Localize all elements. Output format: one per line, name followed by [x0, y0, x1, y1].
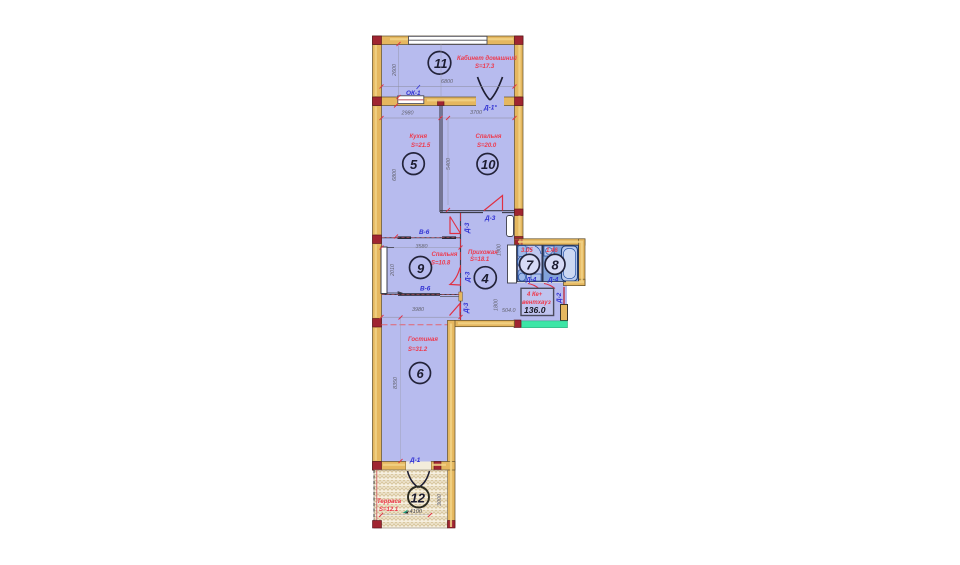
svg-text:Д-3: Д-3: [464, 222, 471, 234]
svg-text:12: 12: [411, 491, 426, 506]
svg-text:6800: 6800: [441, 79, 453, 85]
svg-text:ОК-1: ОК-1: [406, 90, 421, 97]
svg-text:7: 7: [526, 258, 534, 273]
svg-text:Д-3: Д-3: [484, 215, 496, 222]
svg-text:2600: 2600: [392, 64, 398, 77]
svg-text:Кабинет домашний: Кабинет домашний: [457, 55, 517, 62]
svg-text:Гостиная: Гостиная: [408, 337, 438, 343]
svg-text:10: 10: [481, 157, 496, 172]
svg-text:S=18.1: S=18.1: [470, 257, 490, 263]
svg-text:Д-1°: Д-1°: [483, 104, 497, 112]
svg-text:В-6: В-6: [419, 229, 430, 236]
svg-text:В-6: В-6: [420, 286, 431, 293]
svg-text:1.46: 1.46: [546, 248, 558, 254]
svg-text:6800: 6800: [392, 169, 398, 181]
svg-text:Спальня: Спальня: [432, 252, 458, 258]
svg-text:4 Ке+: 4 Ке+: [526, 292, 543, 298]
svg-text:Прихожая: Прихожая: [468, 250, 498, 256]
svg-text:2010: 2010: [390, 264, 396, 277]
svg-text:1900: 1900: [497, 244, 503, 256]
svg-text:3980: 3980: [412, 307, 424, 313]
svg-text:Терраса: Терраса: [377, 499, 402, 505]
svg-text:4: 4: [481, 271, 490, 286]
svg-text:Д-3: Д-3: [465, 271, 472, 283]
svg-text:S=21.5: S=21.5: [411, 143, 431, 149]
svg-text:9: 9: [417, 261, 425, 276]
svg-text:3580: 3580: [416, 244, 428, 250]
svg-text:1800: 1800: [494, 299, 500, 311]
svg-text:Д-2: Д-2: [556, 292, 563, 304]
svg-text:2980: 2980: [401, 111, 414, 117]
svg-text:Д-4: Д-4: [547, 277, 559, 284]
svg-text:S=20.0: S=20.0: [477, 143, 497, 149]
svg-text:S=31.2: S=31.2: [408, 347, 428, 353]
svg-text:4100: 4100: [410, 509, 423, 515]
svg-text:11: 11: [434, 56, 448, 71]
svg-text:5400: 5400: [446, 158, 452, 170]
svg-text:3000: 3000: [437, 494, 443, 506]
svg-text:6: 6: [417, 366, 425, 381]
svg-text:Д-3: Д-3: [463, 302, 470, 314]
svg-text:3.05: 3.05: [521, 248, 533, 254]
svg-text:8: 8: [552, 258, 560, 273]
svg-text:5: 5: [410, 157, 418, 172]
svg-text:504.0: 504.0: [502, 308, 516, 314]
svg-text:Д-1: Д-1: [409, 457, 421, 464]
svg-text:3700: 3700: [470, 110, 482, 116]
svg-text:8350: 8350: [393, 377, 399, 389]
svg-text:Кухня: Кухня: [410, 134, 428, 140]
svg-text:S=12.1: S=12.1: [379, 507, 399, 513]
svg-text:Спальня: Спальня: [476, 134, 502, 140]
svg-text:Д-4: Д-4: [525, 277, 537, 284]
svg-text:S=10.8: S=10.8: [431, 261, 451, 267]
svg-text:136.0: 136.0: [524, 305, 546, 315]
svg-text:S=17.3: S=17.3: [475, 64, 495, 70]
